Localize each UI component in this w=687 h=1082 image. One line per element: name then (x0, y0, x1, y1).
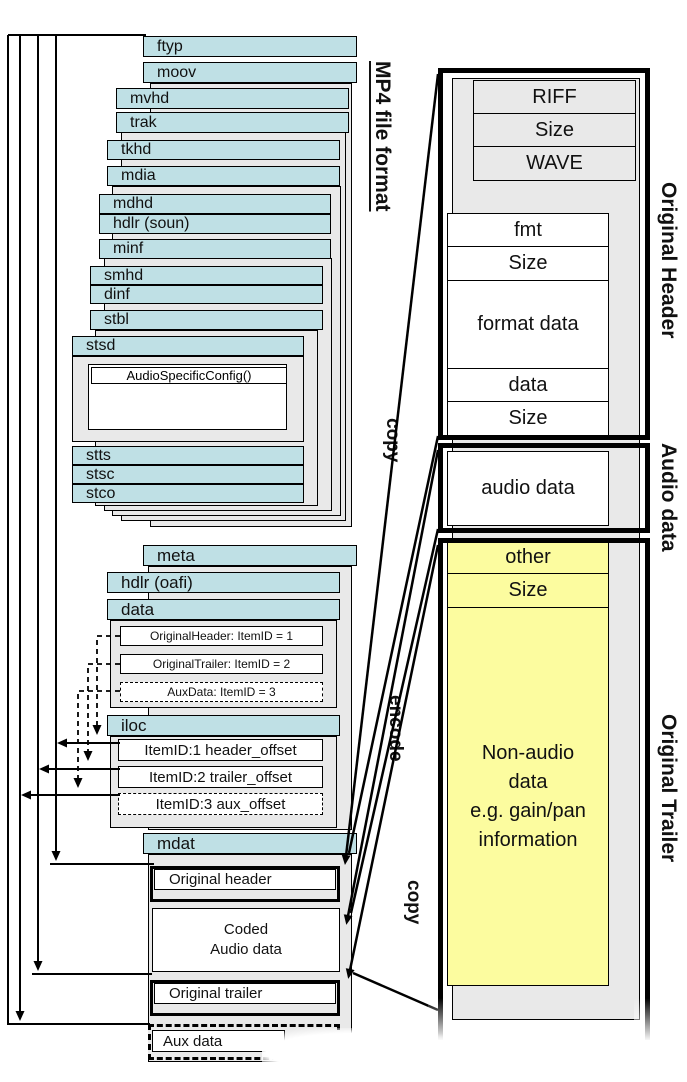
atom-meta-label: meta (157, 546, 195, 566)
iloc-item-header-offset-label: ItemID:1 header_offset (144, 742, 296, 759)
copy-bottom-label: copy (396, 860, 430, 944)
atom-stbl: stbl (90, 310, 323, 330)
mdat-original-trailer-label: Original trailer (169, 985, 262, 1002)
fade-right-frame-edge (634, 998, 658, 1060)
data-item-original-trailer-label: OriginalTrailer: ItemID = 2 (153, 657, 290, 671)
atom-stts-label: stts (86, 447, 111, 465)
atom-minf: minf (99, 239, 331, 259)
data-item-original-header-label: OriginalHeader: ItemID = 1 (150, 629, 293, 643)
atom-mvhd: mvhd (116, 88, 349, 109)
atom-moov-label: moov (157, 64, 196, 82)
mp4-wav-mapping-diagram: ftyp moov mvhd trak tkhd mdia mdhd hdlr … (0, 0, 687, 1082)
audio-specific-config-label: AudioSpecificConfig() (126, 368, 251, 383)
atom-data-label: data (121, 600, 154, 620)
mdat-coded-audio-box: Coded Audio data (152, 908, 340, 972)
atom-stsc: stsc (72, 465, 304, 484)
atom-mdia-label: mdia (121, 167, 156, 185)
atom-mdat: mdat (143, 833, 357, 854)
atom-tkhd-label: tkhd (121, 141, 151, 159)
iloc-item-aux-offset: ItemID:3 aux_offset (118, 793, 323, 815)
audio-data-section-label: Audio data (650, 425, 686, 570)
mdat-original-header-titlebar: Original header (154, 869, 336, 890)
fade-blob-aux-area (262, 1028, 462, 1076)
copy-bottom-text: copy (402, 880, 424, 924)
audio-data-section-text: Audio data (656, 443, 680, 552)
data-item-original-trailer: OriginalTrailer: ItemID = 2 (120, 654, 323, 674)
mdat-original-trailer-titlebar: Original trailer (154, 983, 336, 1004)
iloc-item-header-offset: ItemID:1 header_offset (118, 739, 323, 761)
atom-mdat-label: mdat (157, 834, 195, 854)
atom-mdhd-label: mdhd (113, 195, 153, 213)
atom-dinf: dinf (90, 285, 323, 304)
wav-original-trailer-frame (438, 538, 650, 1040)
data-item-aux-data: AuxData: ItemID = 3 (120, 682, 323, 702)
atom-hdlr-soun-label: hdlr (soun) (113, 215, 189, 233)
atom-mvhd-label: mvhd (130, 90, 169, 108)
atom-stbl-label: stbl (104, 311, 129, 329)
atom-ftyp: ftyp (143, 36, 357, 57)
atom-minf-label: minf (113, 240, 143, 258)
atom-iloc: iloc (107, 715, 340, 736)
wav-original-header-frame (438, 68, 650, 440)
encode-label: encode (378, 662, 412, 794)
atom-stsc-label: stsc (86, 466, 114, 484)
atom-stco-label: stco (86, 485, 115, 503)
original-header-section-label: Original Header (650, 158, 686, 362)
mdat-coded-audio-line2: Audio data (210, 940, 282, 960)
atom-trak-label: trak (130, 114, 157, 132)
copy-top-text: copy (381, 418, 403, 462)
data-item-original-header: OriginalHeader: ItemID = 1 (120, 626, 323, 646)
atom-smhd-label: smhd (104, 267, 143, 285)
atom-smhd: smhd (90, 266, 323, 285)
data-item-aux-data-label: AuxData: ItemID = 3 (167, 685, 275, 699)
original-trailer-section-label: Original Trailer (650, 688, 686, 888)
atom-hdlr-oafi: hdlr (oafi) (107, 572, 340, 593)
atom-meta: meta (143, 545, 357, 566)
mp4-file-format-title-text: MP4 file format (370, 61, 394, 212)
atom-stsd-label: stsd (86, 337, 115, 355)
atom-mdia: mdia (107, 166, 340, 186)
encode-text: encode (384, 695, 406, 762)
atom-ftyp-label: ftyp (157, 38, 183, 56)
copy-top-label: copy (376, 398, 408, 482)
atom-data: data (107, 599, 340, 620)
atom-hdlr-soun: hdlr (soun) (99, 214, 331, 234)
atom-iloc-label: iloc (121, 716, 147, 736)
mdat-aux-data-label: Aux data (163, 1033, 222, 1050)
atom-dinf-label: dinf (104, 286, 130, 304)
audio-specific-config-titlebar: AudioSpecificConfig() (91, 367, 287, 384)
wav-audio-data-frame (438, 443, 650, 533)
mdat-coded-audio-line1: Coded (224, 920, 268, 940)
atom-stsd: stsd (72, 336, 304, 356)
atom-trak: trak (116, 112, 349, 133)
atom-stco: stco (72, 484, 304, 503)
iloc-item-trailer-offset-label: ItemID:2 trailer_offset (149, 769, 292, 786)
original-trailer-section-text: Original Trailer (656, 714, 680, 862)
atom-stts: stts (72, 446, 304, 465)
mdat-original-header-label: Original header (169, 871, 272, 888)
atom-hdlr-oafi-label: hdlr (oafi) (121, 573, 193, 593)
iloc-item-trailer-offset: ItemID:2 trailer_offset (118, 766, 323, 788)
atom-moov: moov (143, 62, 357, 83)
atom-mdhd: mdhd (99, 194, 331, 214)
iloc-item-aux-offset-label: ItemID:3 aux_offset (156, 796, 286, 813)
atom-tkhd: tkhd (107, 140, 340, 160)
original-header-section-text: Original Header (656, 182, 680, 338)
mp4-file-format-title: MP4 file format (364, 36, 400, 236)
